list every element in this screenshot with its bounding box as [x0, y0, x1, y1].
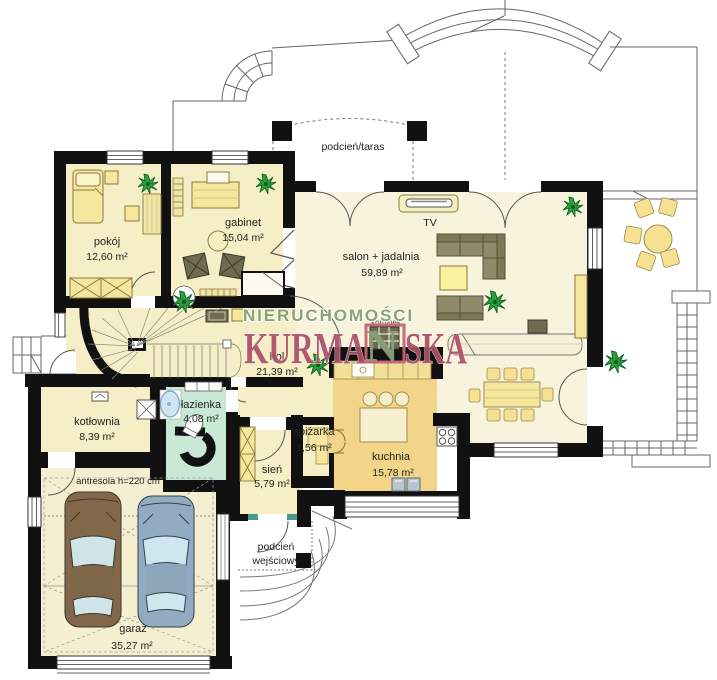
svg-text:pokój: pokój — [94, 236, 120, 248]
svg-text:sień: sień — [262, 464, 282, 476]
svg-text:4,08 m²: 4,08 m² — [183, 413, 219, 425]
svg-text:podcień/taras: podcień/taras — [321, 141, 384, 153]
svg-text:15,04 m²: 15,04 m² — [222, 232, 264, 244]
svg-text:N: N — [365, 320, 398, 371]
svg-text:5,79 m²: 5,79 m² — [254, 478, 290, 490]
svg-text:garaż: garaż — [119, 623, 147, 635]
svg-text:salon + jadalnia: salon + jadalnia — [343, 251, 421, 263]
svg-text:35,27 m²: 35,27 m² — [111, 640, 153, 652]
svg-text:podcień: podcień — [258, 541, 295, 553]
svg-text:kuchnia: kuchnia — [372, 451, 411, 463]
svg-text:KURMA: KURMA — [244, 324, 366, 373]
svg-text:1,56 m²: 1,56 m² — [296, 442, 332, 454]
svg-text:antresola h=220 cm: antresola h=220 cm — [76, 476, 160, 487]
svg-text:15,78 m²: 15,78 m² — [372, 467, 414, 479]
svg-text:spiżarka: spiżarka — [294, 426, 336, 438]
svg-text:12,60 m²: 12,60 m² — [86, 251, 128, 263]
svg-text:59,89 m²: 59,89 m² — [361, 267, 403, 279]
svg-text:gabinet: gabinet — [225, 217, 261, 229]
svg-text:wejściowy: wejściowy — [251, 555, 300, 567]
svg-text:SKA: SKA — [405, 324, 467, 373]
svg-text:łazienka: łazienka — [181, 399, 222, 411]
svg-text:TV: TV — [423, 217, 436, 229]
svg-text:8,39 m²: 8,39 m² — [79, 431, 115, 443]
svg-text:kotłownia: kotłownia — [74, 416, 121, 428]
